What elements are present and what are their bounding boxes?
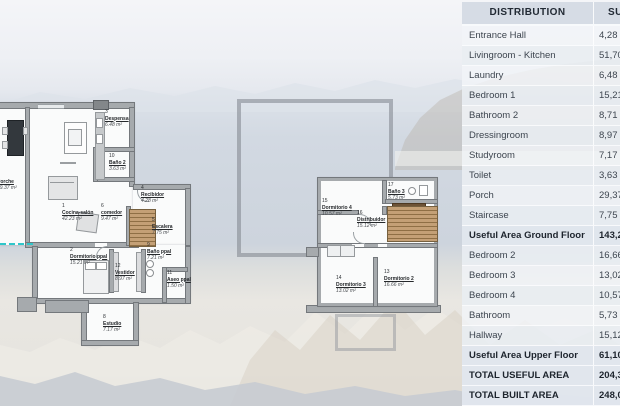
room-area-value: 5.73 m² <box>388 195 405 202</box>
room-label-dormitorio-ppal: 2 Dormitorio ppal 15.21 m² <box>70 247 107 267</box>
table-row: Laundry6,48 <box>462 66 620 86</box>
row-label: Bedroom 2 <box>462 246 593 265</box>
row-label: Laundry <box>462 66 593 85</box>
row-value: 8,71 <box>593 106 618 125</box>
row-value: 7,17 <box>593 146 618 165</box>
room-area-value: 15.12 m² <box>357 223 385 230</box>
cooktop <box>68 129 82 146</box>
table-header: DISTRIBUTION SURFACE <box>462 2 620 26</box>
header-distribution: DISTRIBUTION <box>462 2 593 24</box>
row-label: Entrance Hall <box>462 26 593 45</box>
wall <box>130 108 134 186</box>
sink <box>408 187 416 195</box>
room-area-value: 7.75 m² <box>152 230 173 237</box>
room-area-value: 42.23 m² <box>62 216 93 223</box>
table-row: Hallway15,12 <box>462 326 620 346</box>
table-row: Bedroom 115,21 <box>462 86 620 106</box>
row-label: Bedroom 3 <box>462 266 593 285</box>
door-opening <box>378 244 387 247</box>
row-value: 5,73 <box>593 306 618 325</box>
table-row-subtotal: Useful Area Upper Floor61,10 <box>462 346 620 366</box>
window <box>38 104 64 109</box>
room-label-dormitorio4: 15 Dormitorio 4 10.57 m² <box>322 198 352 218</box>
row-label: Staircase <box>462 206 593 225</box>
room-label-cocina: 1 Cocina-salón 42.23 m² <box>62 203 93 223</box>
room-label-dormitorio2: 13 Dormitorio 2 16.66 m² <box>384 269 414 289</box>
room-label-estudio: 8 Estudio 7.17 m² <box>103 314 121 334</box>
chimney <box>94 101 108 109</box>
room-area-value: 8.97 m² <box>115 276 135 283</box>
room-area-value: 7.21 m² <box>147 255 171 262</box>
row-label: Useful Area Ground Floor <box>462 226 593 245</box>
row-value: 29,37 <box>593 186 620 205</box>
chair <box>23 127 28 135</box>
boundary-line <box>0 243 33 245</box>
room-label-distribuidor: 16 Distribuidor 15.12 m² <box>357 210 385 230</box>
row-label: TOTAL USEFUL AREA <box>462 366 593 385</box>
row-value: 13,02 <box>593 266 620 285</box>
row-value: 15,21 <box>593 86 620 105</box>
wall <box>186 189 190 245</box>
row-value: 8,97 <box>593 126 618 145</box>
header-surface: SURFACE <box>593 2 620 24</box>
room-label-comedor: 6 comedor 9.47 m² <box>101 203 122 223</box>
room-area-value: 29.37 m² <box>0 185 17 192</box>
row-value: 7,75 <box>593 206 618 225</box>
row-label: Bedroom 1 <box>462 86 593 105</box>
room-label-bano3: 17 Baño 3 5.73 m² <box>388 182 405 202</box>
room-area-value: 6.48 m² <box>105 122 129 129</box>
closet <box>340 245 355 257</box>
row-label: Livingroom - Kitchen <box>462 46 593 65</box>
row-value: 4,28 <box>593 26 618 45</box>
wall <box>163 268 166 302</box>
distribution-table: DISTRIBUTION SURFACE Entrance Hall4,28 L… <box>462 2 620 406</box>
chair <box>2 127 8 135</box>
table-row-subtotal: Useful Area Ground Floor143,27 <box>462 226 620 246</box>
row-label: Dressingroom <box>462 126 593 145</box>
table-row: Porch29,37 <box>462 186 620 206</box>
staircase-upper <box>387 206 438 242</box>
table-row: Bedroom 313,02 <box>462 266 620 286</box>
property-listing-image: 7 Porche 29.37 m² 3 Despensa 6.48 m² 10 … <box>0 0 620 406</box>
room-label-porche: 7 Porche 29.37 m² <box>0 172 17 192</box>
room-label-vestidor: 12 Vestidor 8.97 m² <box>115 263 135 283</box>
row-value: 143,27 <box>593 226 620 245</box>
table-row: Bedroom 410,57 <box>462 286 620 306</box>
sofa-seam <box>50 182 74 183</box>
room-label-dormitorio3: 14 Dormitorio 3 13.02 m² <box>336 275 366 295</box>
room-area-value: 16.66 m² <box>384 282 414 289</box>
table-row-total: TOTAL USEFUL AREA204,37 <box>462 366 620 386</box>
table-row: Bathroom 28,71 <box>462 106 620 126</box>
table-row: Dressingroom8,97 <box>462 126 620 146</box>
wall <box>374 258 377 306</box>
row-label: Bedroom 4 <box>462 286 593 305</box>
room-label-bano-ppal: 9 Baño ppal 7.21 m² <box>147 242 171 262</box>
row-value: 6,48 <box>593 66 618 85</box>
shelf-line <box>60 162 76 164</box>
table-row: Bathroom5,73 <box>462 306 620 326</box>
row-value: 51,70 <box>593 46 620 65</box>
row-label: TOTAL BUILT AREA <box>462 386 593 405</box>
room-area-value: 13.02 m² <box>336 288 366 295</box>
row-label: Porch <box>462 186 593 205</box>
appliance <box>96 118 103 128</box>
sink <box>146 269 154 277</box>
row-value: 204,37 <box>593 366 620 385</box>
room-label-bano2: 10 Baño 2 3.63 m² <box>109 153 126 173</box>
room-area-value: 1.50 m² <box>167 283 191 290</box>
table-row: Toilet3,63 <box>462 166 620 186</box>
row-value: 16,66 <box>593 246 620 265</box>
row-label: Bathroom 2 <box>462 106 593 125</box>
wall <box>46 301 88 312</box>
row-value: 15,12 <box>593 326 620 345</box>
toilet <box>419 185 428 196</box>
sofa <box>48 176 78 200</box>
table-row-total: TOTAL BUILT AREA248,08 <box>462 386 620 406</box>
room-label-recibidor: 4 Recibidor 4.28 m² <box>141 185 164 205</box>
wardrobe <box>136 252 142 292</box>
room-area-value: 3.63 m² <box>109 166 126 173</box>
table-row: Staircase7,75 <box>462 206 620 226</box>
table-row: Bedroom 216,66 <box>462 246 620 266</box>
row-label: Studyroom <box>462 146 593 165</box>
balcony-parapet <box>307 248 318 256</box>
chair <box>2 141 8 149</box>
row-label: Bathroom <box>462 306 593 325</box>
row-value: 3,63 <box>593 166 618 185</box>
wall <box>33 247 37 303</box>
terrace-edge <box>307 306 440 312</box>
terrace-outline <box>335 314 396 351</box>
room-area-value: 7.17 m² <box>103 327 121 334</box>
table-row: Studyroom7,17 <box>462 146 620 166</box>
row-value: 61,10 <box>593 346 620 365</box>
row-label: Hallway <box>462 326 593 345</box>
appliance <box>96 134 103 144</box>
ground-floor-plan: 7 Porche 29.37 m² 3 Despensa 6.48 m² 10 … <box>0 100 192 348</box>
room-area-value: 10.57 m² <box>322 211 352 218</box>
wall <box>82 341 138 345</box>
wall <box>0 103 134 108</box>
room-area-value: 15.21 m² <box>70 260 107 267</box>
wall <box>18 298 36 311</box>
wall <box>142 250 145 292</box>
room-area-value: 9.47 m² <box>101 216 122 223</box>
row-label: Toilet <box>462 166 593 185</box>
room-label-despensa: 3 Despensa 6.48 m² <box>105 109 129 129</box>
table-row: Entrance Hall4,28 <box>462 26 620 46</box>
room-label-aseo-ppal: 11 Aseo ppal 1.50 m² <box>167 270 191 290</box>
row-label: Useful Area Upper Floor <box>462 346 593 365</box>
room-label-escalera: 5 Escalera 7.75 m² <box>152 217 173 237</box>
upper-floor-plan: 17 Baño 3 5.73 m² 15 Dormitorio 4 10.57 … <box>307 178 440 314</box>
table-row: Livingroom - Kitchen51,70 <box>462 46 620 66</box>
room-area-value: 4.28 m² <box>141 198 164 205</box>
wall <box>134 303 138 345</box>
row-value: 10,57 <box>593 286 620 305</box>
row-value: 248,08 <box>593 386 620 405</box>
porch-dining-table <box>7 120 24 156</box>
